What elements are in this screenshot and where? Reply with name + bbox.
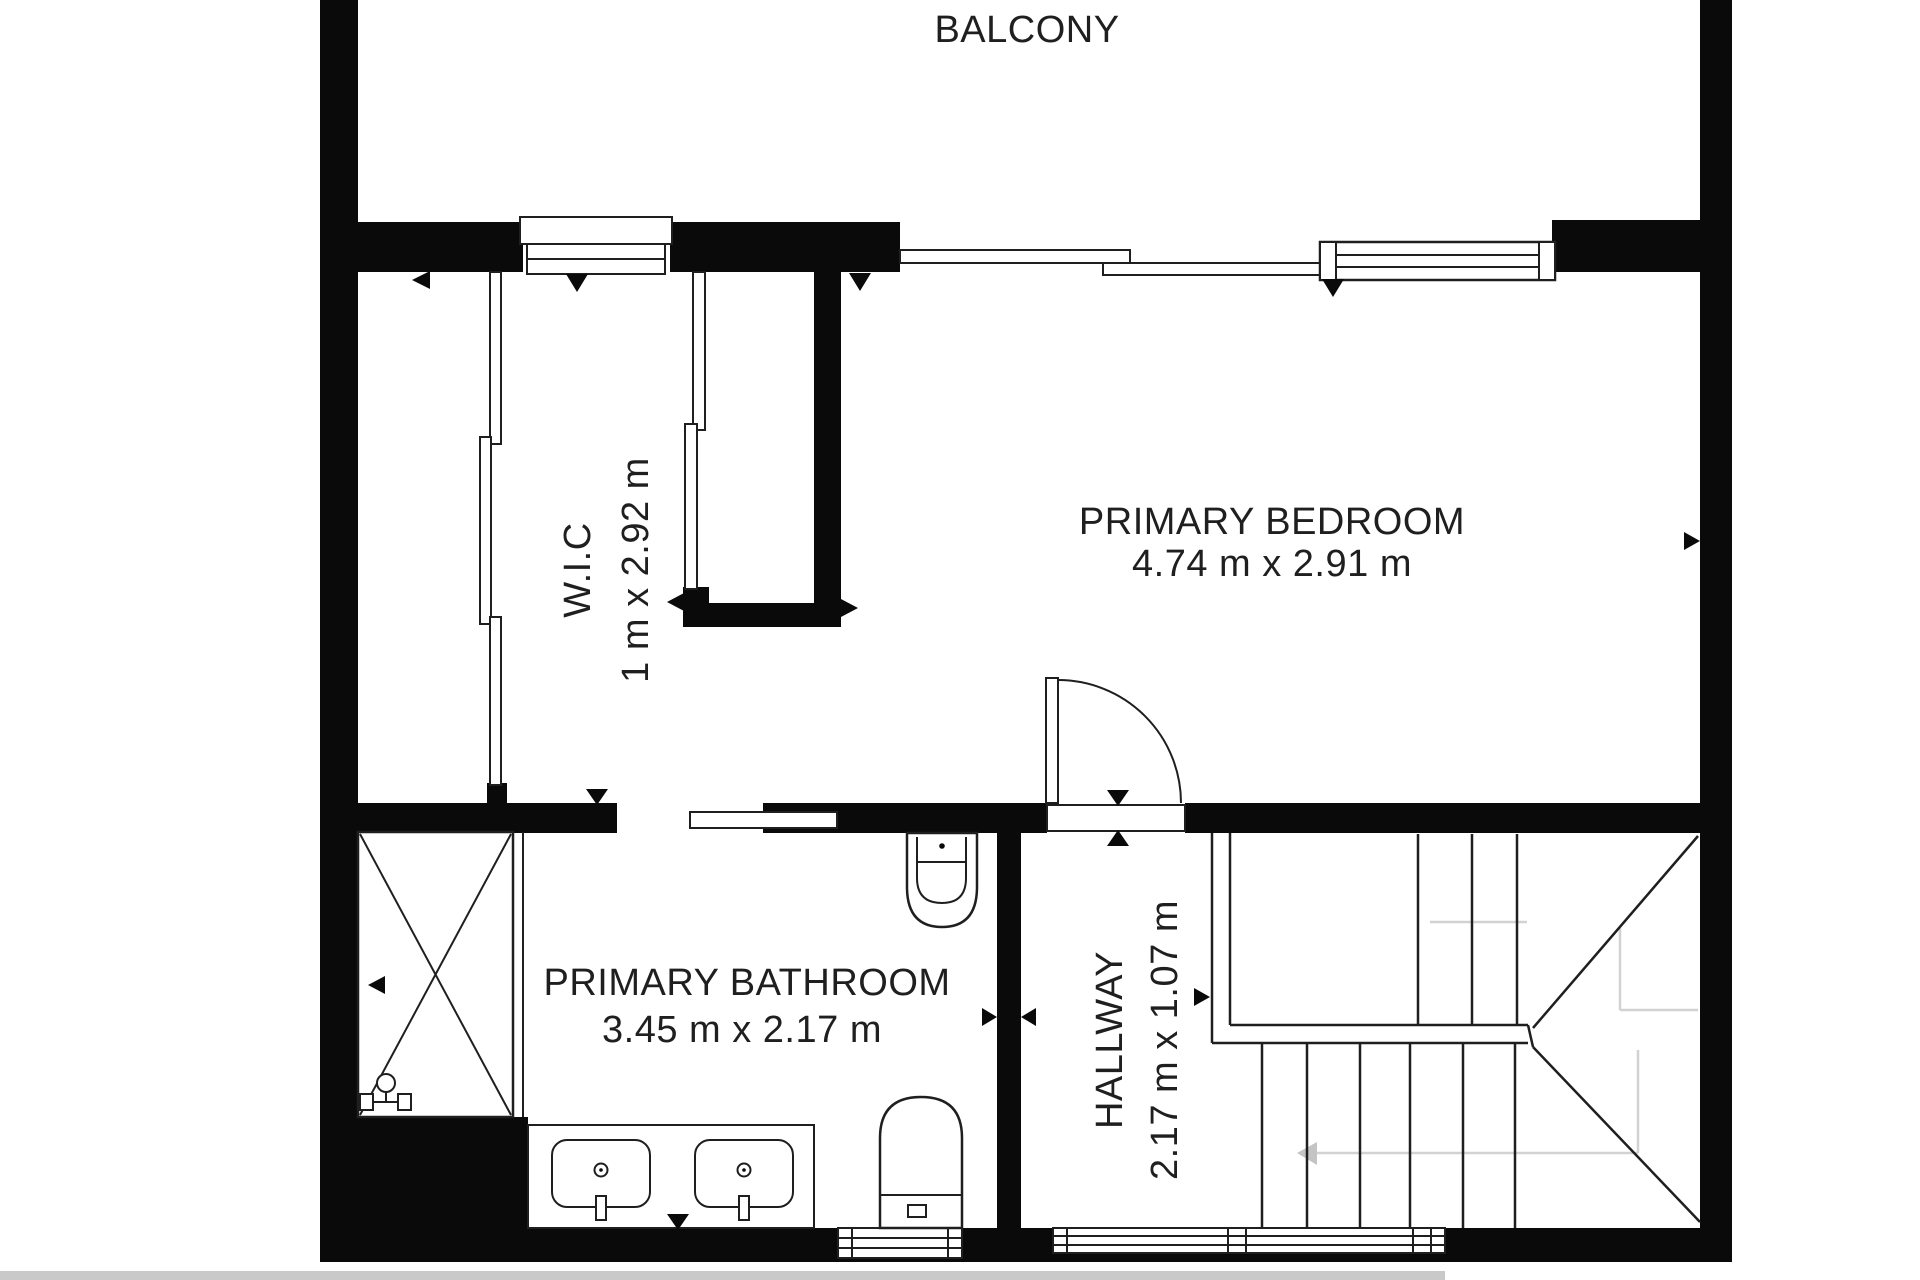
- wic-bottom-wall: [683, 603, 841, 627]
- bathroom-corner-wall-mass: [358, 1117, 528, 1262]
- photo-edge-strip: [0, 1271, 1445, 1280]
- bottom-exterior-wall: [320, 1228, 1732, 1262]
- marker-right-wall: [1684, 532, 1700, 550]
- dimension-markers: [368, 271, 1700, 1230]
- bathroom-dimensions: 3.45 m x 2.17 m: [602, 1009, 882, 1051]
- balcony-label: BALCONY: [934, 9, 1119, 51]
- bedroom-door: [1046, 678, 1185, 831]
- vanity-counter: [528, 1125, 814, 1228]
- marker-wic-window: [566, 274, 588, 292]
- hallway-bottom-window: [1053, 1228, 1445, 1253]
- marker-wic-opening-left: [667, 593, 684, 611]
- floor-plan: BALCONY PRIMARY BEDROOM 4.74 m x 2.91 m …: [0, 0, 1920, 1280]
- top-wall-mid-segment: [670, 222, 900, 272]
- bathroom-sliding-door: [690, 812, 837, 828]
- bedroom-window: [1320, 242, 1555, 280]
- marker-divider-left: [982, 1008, 997, 1026]
- floor-plan-drawing: BALCONY PRIMARY BEDROOM 4.74 m x 2.91 m …: [0, 0, 1920, 1280]
- bidet: [907, 833, 977, 927]
- marker-stair-wall: [1194, 988, 1210, 1006]
- bedroom-door-leaf: [1046, 678, 1058, 803]
- marker-bedroom-window: [1322, 279, 1344, 297]
- top-wall-right-segment: [1552, 220, 1700, 272]
- bedroom-label: PRIMARY BEDROOM: [1079, 501, 1465, 543]
- bathroom-top-wall-left: [358, 803, 617, 833]
- left-exterior-wall: [320, 0, 358, 1262]
- hallway-dimensions: 2.17 m x 1.07 m: [1144, 900, 1186, 1180]
- wic-right-wall: [814, 272, 841, 627]
- staircase: [1212, 833, 1700, 1228]
- shower: [358, 832, 523, 1117]
- wic-window: [520, 217, 672, 274]
- marker-divider-right: [1021, 1008, 1036, 1026]
- marker-sliding-door: [586, 789, 608, 805]
- bathroom-label: PRIMARY BATHROOM: [543, 962, 950, 1004]
- bathroom-bottom-window: [838, 1228, 962, 1258]
- bedroom-bottom-wall: [1185, 803, 1700, 833]
- marker-wall-left-of-window: [412, 271, 430, 289]
- bedroom-door-swing-arc: [1058, 680, 1181, 803]
- wic-dimensions: 1 m x 2.92 m: [615, 457, 657, 683]
- marker-balcony-door: [849, 273, 871, 291]
- marker-threshold-top: [1107, 790, 1129, 806]
- balcony-sliding-door: [900, 250, 1323, 275]
- top-wall-left-segment: [358, 222, 523, 272]
- sink-tap-icon: [739, 1196, 749, 1220]
- bathroom-hallway-divider-wall: [997, 833, 1021, 1228]
- marker-threshold-bottom: [1107, 830, 1129, 846]
- bedroom-door-threshold: [1047, 805, 1185, 831]
- right-exterior-wall: [1700, 0, 1732, 1262]
- marker-wic-opening-right: [841, 599, 858, 617]
- hallway-label: HALLWAY: [1089, 951, 1131, 1129]
- toilet: [880, 1097, 962, 1228]
- wic-label: W.I.C: [557, 522, 599, 617]
- bedroom-dimensions: 4.74 m x 2.91 m: [1132, 543, 1412, 585]
- sink-tap-icon: [596, 1196, 606, 1220]
